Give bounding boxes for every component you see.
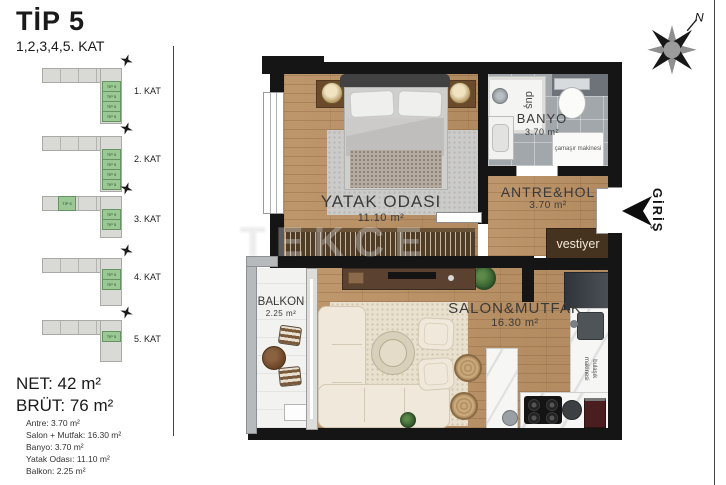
floor-label: 2. KAT (134, 154, 161, 164)
unit-highlight: TİP 5 (102, 111, 121, 122)
small-plant (400, 412, 416, 428)
balcony-wall-left (246, 256, 257, 434)
wall-bottom (248, 428, 622, 440)
unit-highlight: TİP 5 (102, 219, 121, 230)
wall-stub (522, 256, 534, 302)
mini-compass-icon (118, 52, 134, 68)
living-area: 16.30 m² (440, 317, 590, 330)
wall-right-upper (608, 62, 622, 187)
console-decor (448, 275, 454, 281)
lamp-right (449, 82, 471, 104)
balcony-name: BALKON (258, 296, 305, 308)
room-area-line: Salon + Mutfak: 16.30 m² (26, 430, 121, 440)
kitchen-appliance (562, 400, 582, 420)
floor-label: 5. KAT (134, 334, 161, 344)
right-divider-line (714, 0, 715, 485)
burner (528, 412, 540, 424)
bathroom-label: BANYO 3.70 m² (482, 112, 602, 137)
room-area-line: Yatak Odası: 11.10 m² (26, 454, 110, 464)
burner (546, 399, 558, 411)
pillow (398, 90, 443, 118)
bed-headboard (340, 74, 450, 87)
brut-area: BRÜT: 76 m² (16, 396, 113, 416)
page-title: TİP 5 (16, 6, 85, 37)
coffee-machine (584, 398, 606, 428)
bar-stool (454, 354, 482, 382)
room-area-line: Banyo: 3.70 m² (26, 442, 84, 452)
balcony-label: BALKON 2.25 m² (250, 296, 312, 318)
wall-hall-kitchen (534, 258, 608, 270)
balcony-table (262, 346, 286, 370)
kettle (502, 410, 518, 426)
key-plan-floor-3: TİP 5 TİP 5 TİP 5 3. KAT (36, 188, 176, 252)
unit-highlight: TİP 5 (102, 331, 121, 342)
watermark: TEKCE (240, 218, 432, 266)
bedroom-name: YATAK ODASI (321, 192, 442, 211)
mini-compass-icon (118, 180, 134, 196)
hall-area: 3.70 m² (488, 200, 608, 212)
entrance-arrow-icon (620, 194, 652, 228)
compass-north-label: N (695, 10, 704, 24)
pillow (349, 90, 394, 118)
floor-label: 3. KAT (134, 214, 161, 224)
sofa-cushion-line (332, 344, 362, 345)
compass-icon: N (634, 8, 710, 84)
window-frame-line (276, 93, 277, 213)
hall-name: ANTRE&HOL (501, 184, 596, 200)
bathroom-door-opening (516, 166, 558, 176)
balcony-glass-door (306, 268, 318, 430)
unit-highlight: TİP 5 (58, 196, 76, 211)
net-area: NET: 42 m² (16, 374, 101, 394)
living-name: SALON&MUTFAK (448, 300, 582, 317)
bathroom-area: 3.70 m² (482, 127, 602, 137)
burner (546, 412, 558, 424)
wall-top (278, 62, 622, 74)
room-area-line: Balkon: 2.25 m² (26, 466, 86, 476)
shower-head (492, 88, 508, 104)
key-plan-floor-4: TİP 5 TİP 5 4. KAT (36, 250, 176, 312)
sofa-cushion-line (332, 382, 362, 383)
tv (388, 272, 436, 279)
mini-compass-icon (118, 242, 134, 258)
bathroom-name: BANYO (517, 111, 568, 126)
dishwasher-label-wrap: bulaşık makinesi (570, 350, 608, 388)
burner (528, 399, 540, 411)
bed-duvet (350, 150, 442, 188)
coffee-table-top (379, 339, 407, 367)
key-plan-floor-1: TİP 5 TİP 5 TİP 5 TİP 5 1. KAT (36, 60, 176, 126)
balcony-area: 2.25 m² (250, 309, 312, 318)
key-plan-floor-2: TİP 5 TİP 5 TİP 5 TİP 5 2. KAT (36, 128, 176, 194)
sofa-bottom-section (318, 384, 450, 428)
room-area-line: Antre: 3.70 m² (26, 418, 80, 428)
console-decor (348, 272, 364, 284)
armchair-cushion (423, 362, 448, 386)
floor-label: 4. KAT (134, 272, 161, 282)
entrance-label: GİRİŞ (650, 188, 665, 240)
wall-right-lower (608, 233, 622, 440)
dishwasher-label: bulaşık makinesi (581, 351, 597, 387)
hall-label: ANTRE&HOL 3.70 m² (488, 184, 608, 212)
unit-highlight: TİP 5 (102, 279, 121, 290)
window-frame-line (270, 93, 271, 213)
balcony-chair (278, 325, 302, 347)
living-label: SALON&MUTFAK 16.30 m² (440, 300, 590, 330)
page-subtitle: 1,2,3,4,5. KAT (16, 38, 104, 54)
washing-machine: çamaşır makinesi (552, 132, 604, 168)
floor-plan-sheet: TİP 5 1,2,3,4,5. KAT TİP 5 TİP 5 TİP 5 T… (0, 0, 726, 485)
key-plan-floor-5: TİP 5 5. KAT (36, 312, 176, 372)
sofa-cushion-line (364, 388, 365, 422)
balcony-chair (278, 366, 302, 387)
mini-compass-icon (118, 120, 134, 136)
bedroom-window (263, 92, 284, 214)
mini-compass-icon (118, 304, 134, 320)
floor-label: 1. KAT (134, 86, 161, 96)
bar-stool (450, 392, 478, 420)
